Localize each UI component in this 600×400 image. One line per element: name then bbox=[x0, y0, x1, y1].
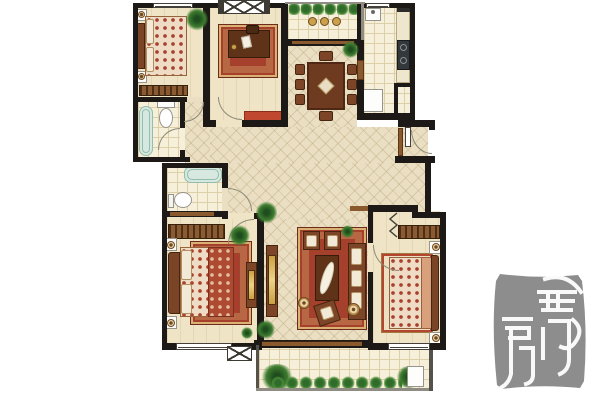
briefcase bbox=[246, 25, 259, 34]
potted-plant bbox=[256, 320, 275, 339]
potted-plant bbox=[341, 225, 354, 238]
wall bbox=[425, 156, 431, 213]
wall bbox=[162, 163, 167, 350]
dining-chair bbox=[295, 79, 305, 90]
wall bbox=[440, 212, 446, 350]
sofa-cushion bbox=[351, 270, 362, 287]
balcony-rail bbox=[361, 3, 364, 40]
threshold bbox=[350, 206, 368, 211]
bay-window-cap bbox=[264, 1, 269, 13]
dining-chair bbox=[347, 79, 357, 90]
brand-seal: 融房 bbox=[487, 268, 588, 394]
balcony-rail bbox=[429, 350, 433, 391]
nightstand-rosette bbox=[138, 11, 145, 18]
nightstand-rosette bbox=[167, 319, 175, 327]
bay-window-pane bbox=[244, 1, 264, 13]
dining-chair bbox=[319, 111, 333, 121]
potted-plant bbox=[256, 201, 277, 224]
bed-pillow bbox=[146, 47, 154, 72]
floor-plan-canvas: 融房 bbox=[0, 0, 600, 400]
wardrobe bbox=[168, 224, 225, 239]
balcony-rail bbox=[256, 388, 433, 391]
window bbox=[176, 343, 232, 350]
sliding-door-zigzag bbox=[389, 212, 398, 240]
wall bbox=[368, 205, 417, 212]
bed-headboard bbox=[168, 252, 180, 314]
bathtub bbox=[139, 106, 153, 156]
wall bbox=[368, 205, 373, 350]
tv-living bbox=[268, 255, 276, 305]
nightstand-rosette bbox=[432, 334, 440, 342]
window bbox=[366, 3, 390, 8]
side-table bbox=[298, 297, 310, 309]
wall bbox=[394, 83, 398, 113]
wall bbox=[394, 83, 414, 87]
balcony-rail bbox=[285, 2, 365, 4]
balcony-top-hedge bbox=[289, 4, 362, 15]
kitchen-door-panel bbox=[357, 60, 364, 80]
nightstand-rosette bbox=[432, 243, 440, 251]
wardrobe bbox=[398, 225, 440, 239]
washing-machine bbox=[407, 366, 424, 387]
wall bbox=[162, 163, 228, 168]
wall bbox=[429, 120, 435, 130]
toilet-bowl bbox=[159, 108, 173, 128]
stove-burner bbox=[400, 44, 407, 51]
dining-chair bbox=[347, 64, 357, 75]
toilet-bowl bbox=[174, 192, 192, 208]
balcony-rail bbox=[256, 345, 259, 391]
door-gap bbox=[228, 213, 254, 219]
sliding-door-track bbox=[262, 341, 362, 346]
sofa-cushion bbox=[351, 248, 362, 265]
seal-stamp-graphic bbox=[487, 268, 588, 394]
flower-pot bbox=[332, 17, 341, 26]
bathtub bbox=[184, 166, 222, 183]
dining-chair bbox=[347, 94, 357, 105]
potted-plant bbox=[241, 327, 253, 339]
fridge bbox=[363, 89, 383, 112]
potted-plant bbox=[342, 41, 359, 58]
side-table bbox=[347, 303, 360, 316]
dining-chair bbox=[295, 64, 305, 75]
dining-chair bbox=[319, 51, 333, 61]
wall bbox=[133, 3, 138, 162]
wardrobe bbox=[139, 85, 188, 96]
armchair-cushion bbox=[306, 235, 317, 247]
bed-pillow bbox=[146, 19, 154, 44]
flower-pot bbox=[308, 17, 317, 26]
door-gap bbox=[216, 120, 242, 127]
window bbox=[388, 343, 430, 350]
toilet-tank bbox=[157, 101, 175, 108]
bay-window-pane bbox=[224, 1, 244, 13]
stove-burner bbox=[400, 57, 407, 64]
door-gap bbox=[180, 128, 185, 150]
tv-master bbox=[248, 270, 255, 300]
entry-cabinet bbox=[398, 128, 403, 156]
window bbox=[153, 3, 193, 8]
bed-headboard bbox=[431, 255, 439, 331]
threshold bbox=[170, 212, 214, 216]
nightstand-rosette bbox=[167, 241, 175, 249]
nightstand-rosette bbox=[138, 73, 145, 80]
x-window bbox=[227, 346, 252, 361]
wall bbox=[357, 113, 415, 120]
potted-plant bbox=[186, 7, 208, 31]
bay-window bbox=[218, 0, 270, 14]
bed-pillow bbox=[181, 284, 192, 314]
potted-plant bbox=[229, 225, 250, 246]
wall bbox=[410, 3, 415, 120]
armchair-cushion bbox=[327, 235, 338, 247]
flower-pot bbox=[320, 17, 329, 26]
bed-throw bbox=[208, 247, 234, 317]
sink-faucet bbox=[371, 10, 375, 14]
desk-lamp bbox=[231, 44, 237, 50]
dining-chair bbox=[295, 94, 305, 105]
bed-pillow bbox=[181, 250, 192, 280]
